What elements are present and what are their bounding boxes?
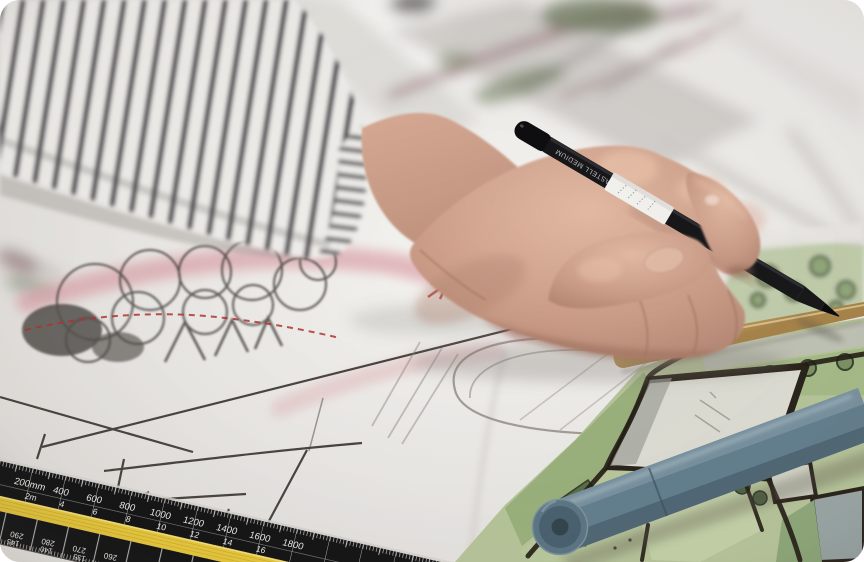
scene-photo: 200mm 400 600 800 1000 1200 1400 1600 18… bbox=[0, 0, 864, 562]
vignette bbox=[0, 0, 864, 562]
photo-card: 200mm 400 600 800 1000 1200 1400 1600 18… bbox=[0, 0, 864, 562]
